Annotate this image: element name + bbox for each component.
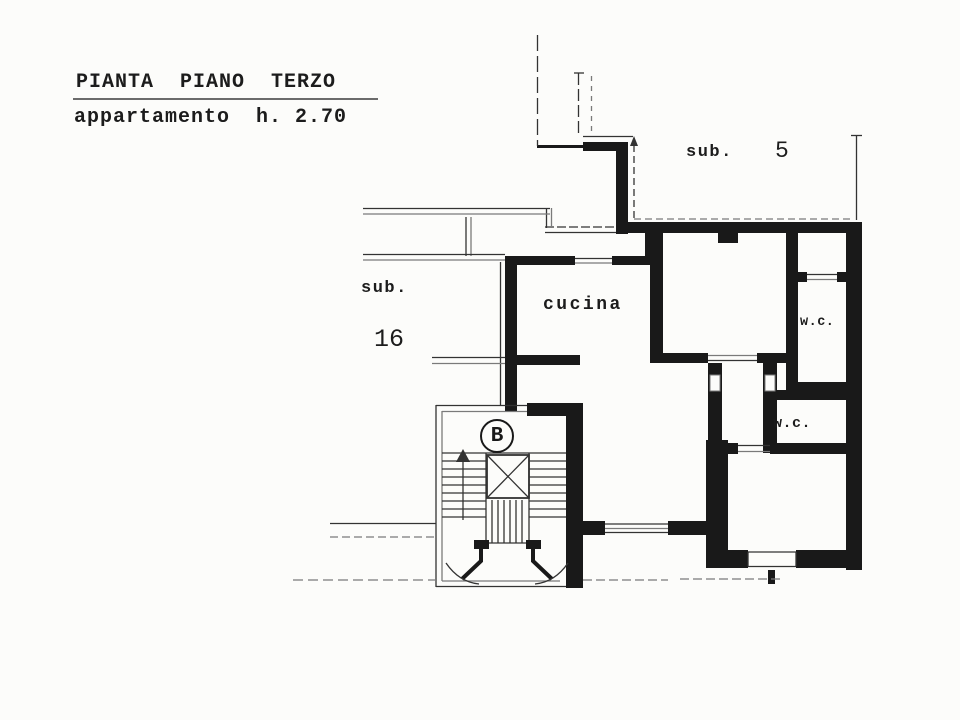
terrace-sub5-lines: [630, 135, 862, 220]
floor-plan: PIANTA PIANO TERZO appartamento h. 2.70 …: [0, 0, 960, 720]
label-wc-lower: w.c.: [773, 416, 811, 432]
staircase-letter-badge: B: [480, 419, 514, 453]
title-underline: [73, 98, 378, 100]
label-sub16-number: 16: [374, 327, 404, 353]
label-sub5-number: 5: [775, 139, 789, 163]
terrace-sub16-lines: [363, 209, 550, 407]
plan-subtitle: appartamento h. 2.70: [74, 107, 347, 128]
thick-walls: [505, 142, 862, 588]
wall-door-insets: [710, 375, 775, 391]
label-sub16-prefix: sub.: [361, 280, 408, 298]
label-sub5-prefix: sub.: [686, 144, 733, 162]
label-wc-upper: w.c.: [800, 316, 834, 330]
plan-title: PIANTA PIANO TERZO: [76, 72, 336, 93]
entrance-doors: [446, 540, 568, 584]
window-lines: [748, 552, 796, 567]
elevator-shaft: [487, 455, 529, 498]
label-kitchen: cucina: [543, 296, 623, 315]
